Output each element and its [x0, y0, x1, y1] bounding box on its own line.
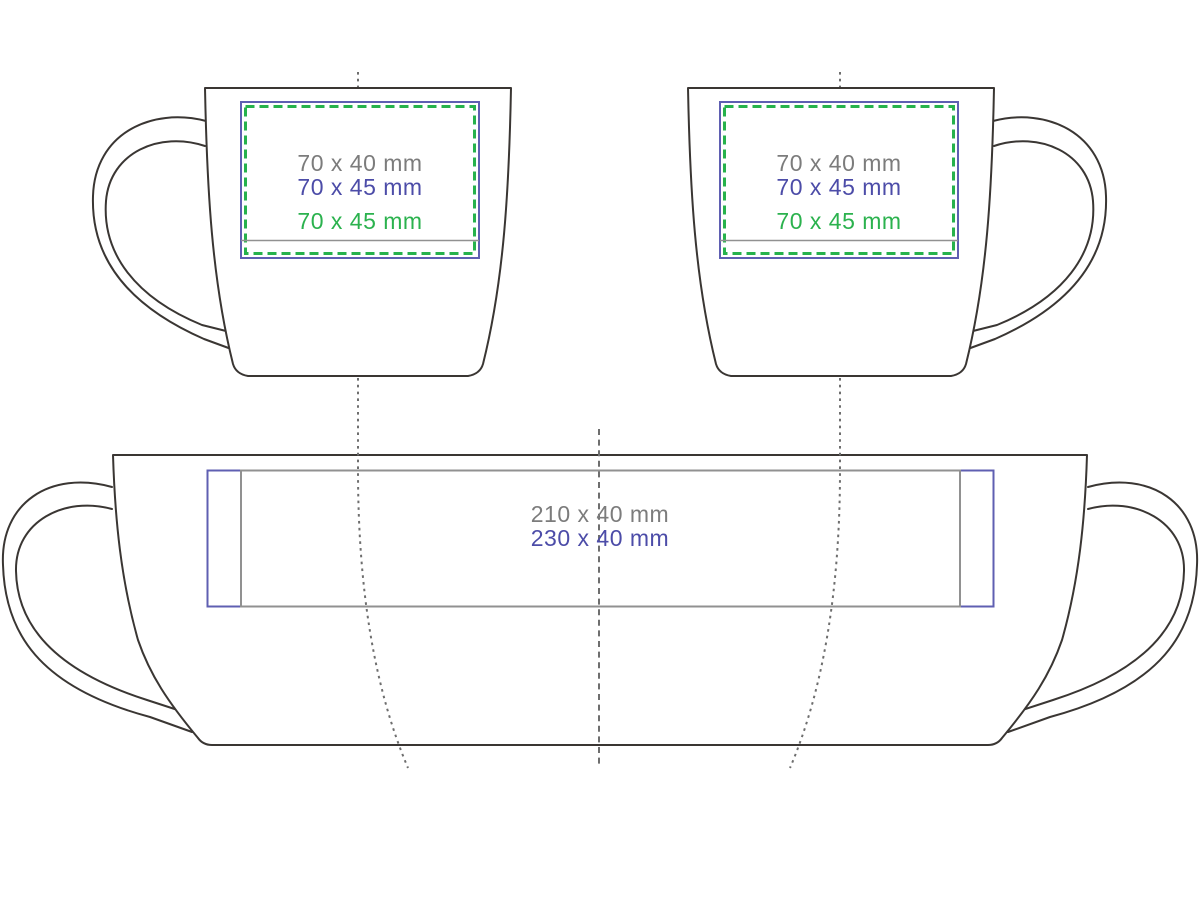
front-right-size-label-gray: 70 x 40 mm [776, 150, 901, 176]
wrap-size-label-gray: 210 x 40 mm [531, 501, 669, 527]
front-right-size-label-green: 70 x 45 mm [776, 208, 901, 234]
front-right-mug: 70 x 40 mm 70 x 45 mm 70 x 45 mm [688, 88, 1106, 376]
front-left-size-label-green: 70 x 45 mm [297, 208, 422, 234]
wrap-size-label-blue: 230 x 40 mm [531, 525, 669, 551]
mug-print-template-page: 70 x 40 mm 70 x 45 mm 70 x 45 mm 70 x 40… [0, 0, 1200, 900]
front-left-size-label-gray: 70 x 40 mm [297, 150, 422, 176]
mug-print-template-drawing: 70 x 40 mm 70 x 45 mm 70 x 45 mm 70 x 40… [0, 0, 1200, 900]
front-left-size-label-blue: 70 x 45 mm [297, 174, 422, 200]
front-left-mug: 70 x 40 mm 70 x 45 mm 70 x 45 mm [93, 88, 511, 376]
front-right-size-label-blue: 70 x 45 mm [776, 174, 901, 200]
